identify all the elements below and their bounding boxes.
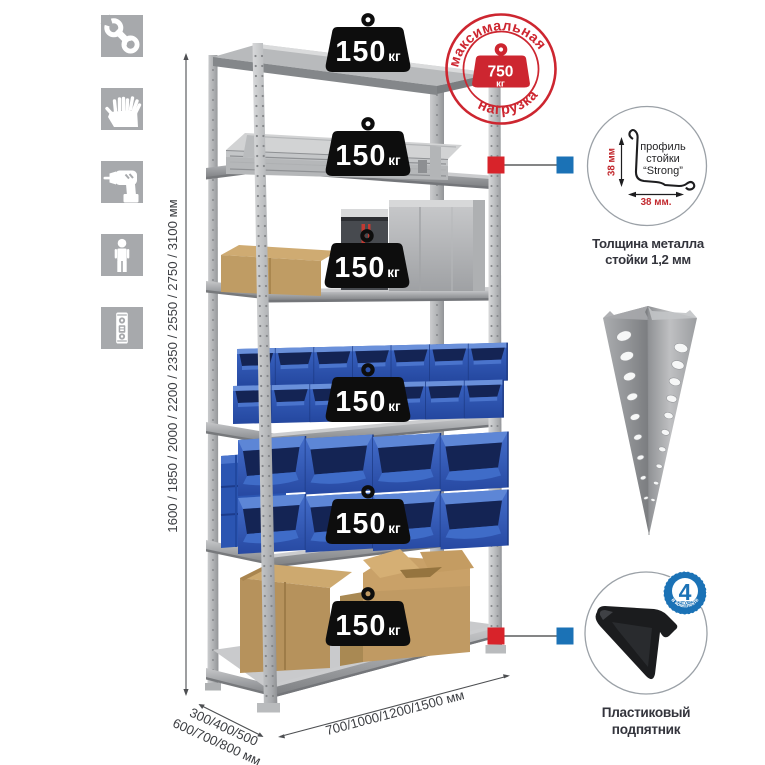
- svg-text:1600 / 1850 / 2000 / 2200 / 23: 1600 / 1850 / 2000 / 2200 / 2350 / 2550 …: [165, 199, 180, 532]
- svg-text:150: 150: [334, 252, 385, 284]
- svg-text:кг: кг: [388, 399, 401, 414]
- svg-text:Пластиковый: Пластиковый: [602, 705, 691, 720]
- svg-text:кг: кг: [388, 521, 401, 536]
- svg-text:профиль: профиль: [640, 141, 686, 153]
- svg-text:стойки: стойки: [646, 153, 680, 165]
- svg-text:“Strong”: “Strong”: [643, 165, 683, 177]
- svg-text:150: 150: [335, 386, 386, 418]
- svg-text:38 мм: 38 мм: [607, 148, 618, 176]
- svg-text:38 мм.: 38 мм.: [641, 197, 672, 208]
- svg-text:700/1000/1200/1500 мм: 700/1000/1200/1500 мм: [324, 687, 466, 738]
- svg-text:стойки 1,2 мм: стойки 1,2 мм: [605, 252, 691, 267]
- svg-text:150: 150: [335, 508, 386, 540]
- svg-text:150: 150: [335, 140, 386, 172]
- svg-text:нагрузка: нагрузка: [473, 85, 545, 124]
- svg-text:кг: кг: [496, 79, 505, 90]
- svg-text:подпятник: подпятник: [612, 722, 681, 737]
- svg-text:кг: кг: [388, 623, 401, 638]
- svg-text:150: 150: [335, 36, 386, 68]
- svg-text:кг: кг: [388, 49, 401, 64]
- svg-text:кг: кг: [388, 153, 401, 168]
- svg-text:Толщина металла: Толщина металла: [592, 236, 705, 251]
- svg-text:150: 150: [335, 610, 386, 642]
- svg-text:кг: кг: [387, 265, 400, 280]
